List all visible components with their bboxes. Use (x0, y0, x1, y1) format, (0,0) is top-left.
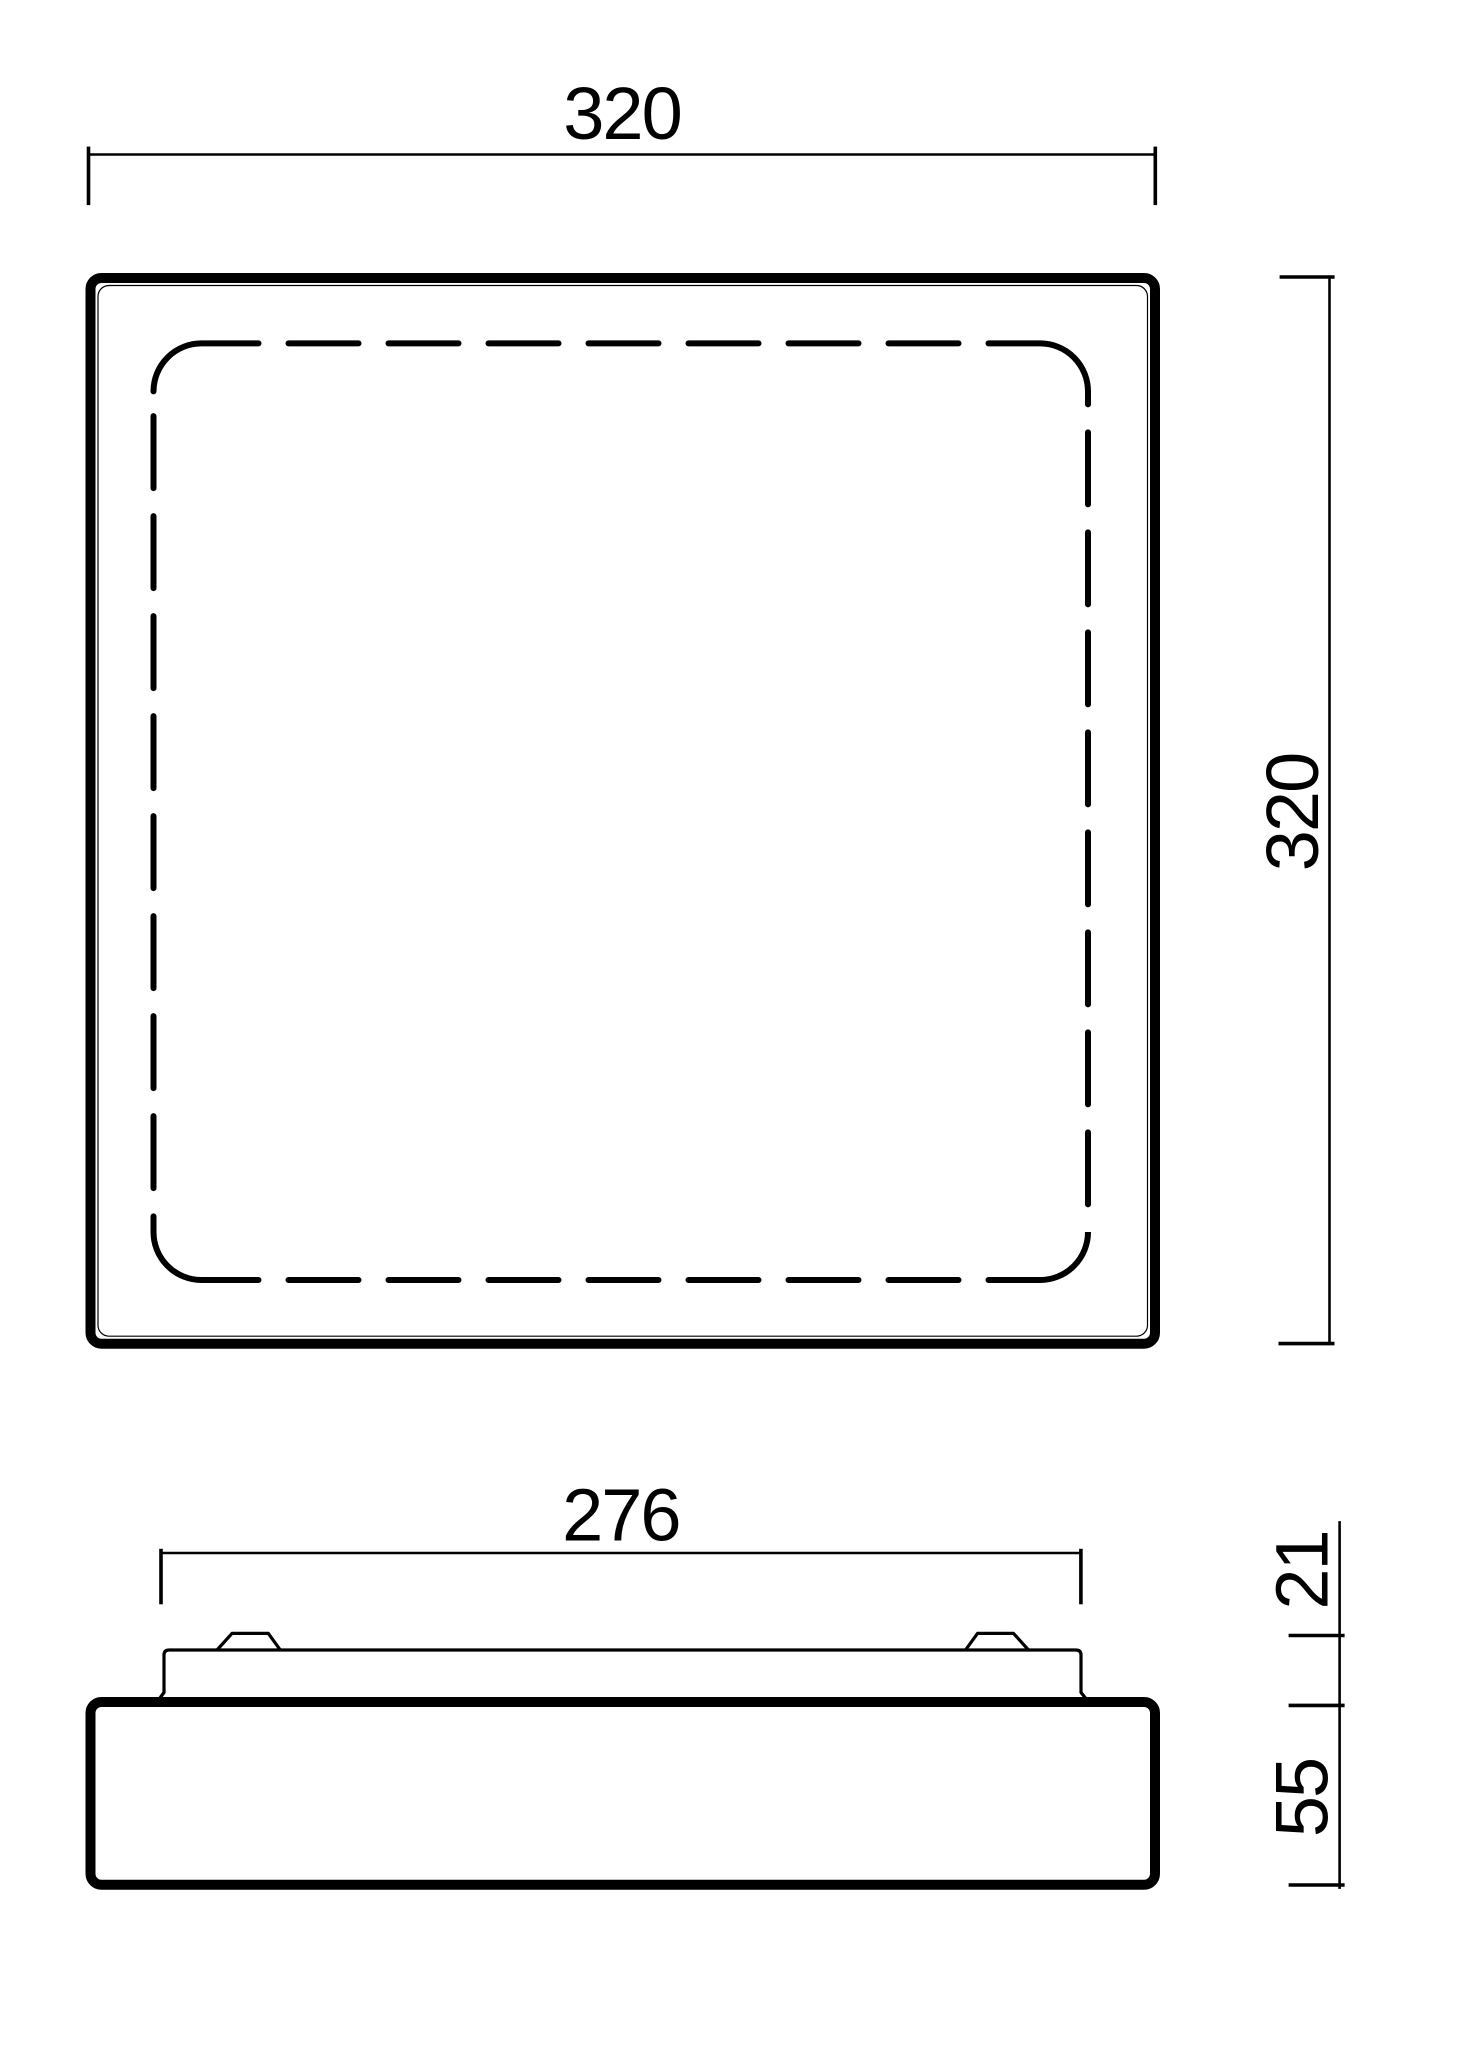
svg-text:55: 55 (1261, 1759, 1344, 1837)
svg-text:21: 21 (1261, 1531, 1344, 1609)
svg-text:320: 320 (1251, 754, 1334, 871)
svg-text:320: 320 (563, 72, 680, 155)
svg-text:276: 276 (562, 1474, 679, 1557)
